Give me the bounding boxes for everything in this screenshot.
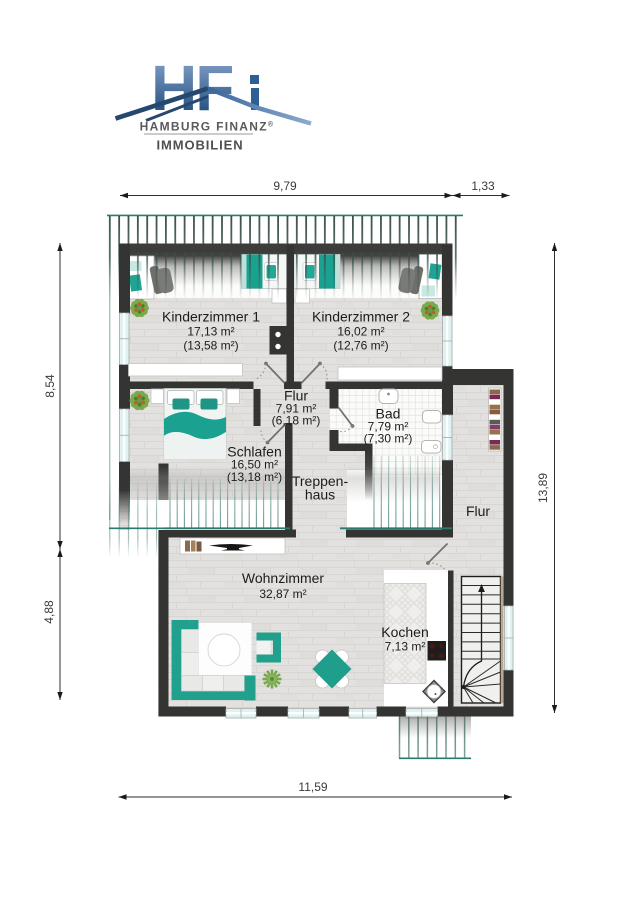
svg-text:(13,18 m²): (13,18 m²) (227, 470, 282, 484)
svg-text:Flur: Flur (466, 503, 490, 519)
svg-text:IMMOBILIEN: IMMOBILIEN (157, 138, 244, 153)
svg-text:7,13 m²: 7,13 m² (385, 640, 426, 654)
svg-text:HAMBURG FINANZ®: HAMBURG FINANZ® (140, 120, 275, 134)
svg-text:8,54: 8,54 (43, 374, 57, 398)
svg-text:Kochen: Kochen (381, 624, 428, 640)
svg-text:17,13 m²: 17,13 m² (187, 325, 234, 339)
svg-text:4,88: 4,88 (42, 600, 56, 624)
svg-text:Kinderzimmer 2: Kinderzimmer 2 (312, 309, 410, 325)
svg-text:(13,58 m²): (13,58 m²) (183, 339, 238, 353)
svg-text:Wohnzimmer: Wohnzimmer (242, 570, 325, 586)
svg-text:16,02 m²: 16,02 m² (337, 325, 384, 339)
svg-text:11,59: 11,59 (298, 780, 327, 794)
svg-text:13,89: 13,89 (536, 473, 550, 503)
svg-text:Kinderzimmer 1: Kinderzimmer 1 (162, 309, 260, 325)
svg-text:haus: haus (305, 487, 335, 503)
svg-text:1,33: 1,33 (471, 179, 495, 193)
svg-text:9,79: 9,79 (273, 179, 297, 193)
svg-text:(12,76 m²): (12,76 m²) (333, 339, 388, 353)
svg-text:(6,18 m²): (6,18 m²) (272, 414, 321, 428)
svg-text:32,87 m²: 32,87 m² (259, 587, 306, 601)
svg-text:(7,30 m²): (7,30 m²) (364, 432, 413, 446)
